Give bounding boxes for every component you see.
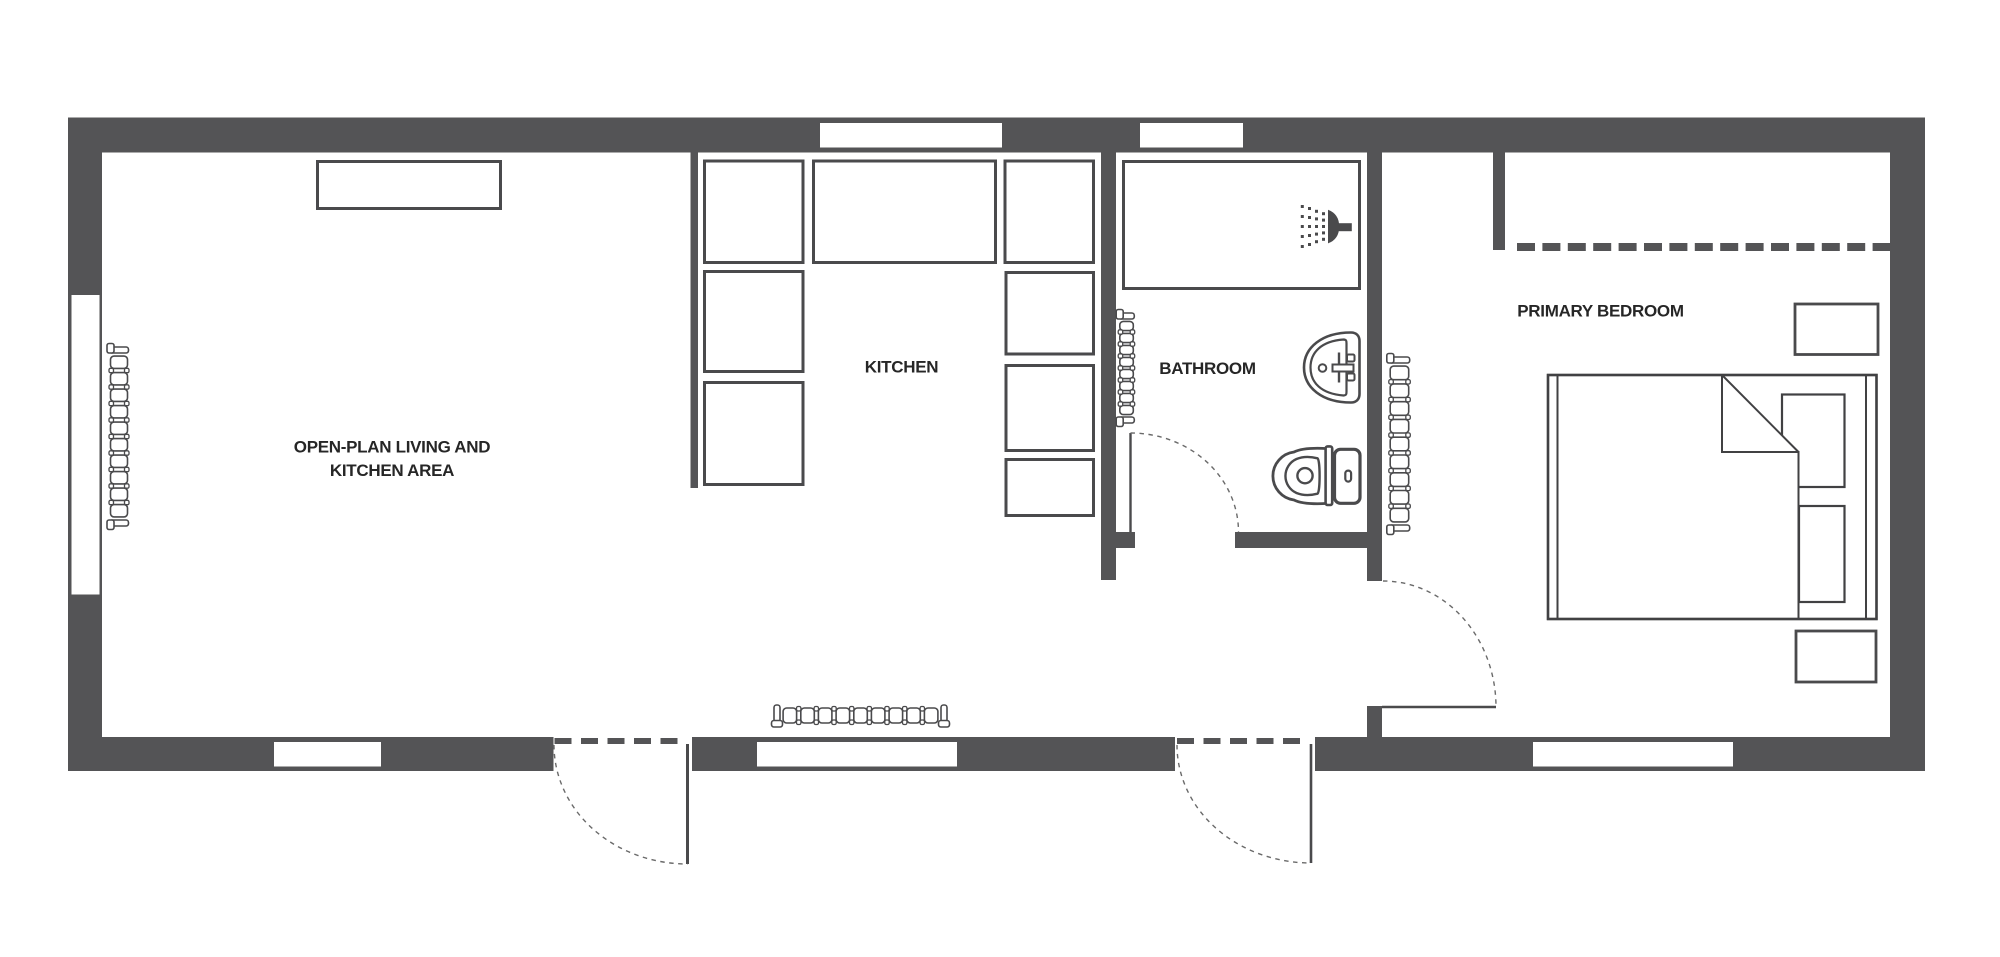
svg-text:PRIMARY BEDROOM: PRIMARY BEDROOM [1517,302,1684,321]
svg-text:OPEN-PLAN LIVING AND: OPEN-PLAN LIVING AND [294,438,490,457]
svg-text:KITCHEN: KITCHEN [865,358,938,377]
svg-text:KITCHEN AREA: KITCHEN AREA [330,461,454,480]
svg-text:BATHROOM: BATHROOM [1159,359,1256,378]
